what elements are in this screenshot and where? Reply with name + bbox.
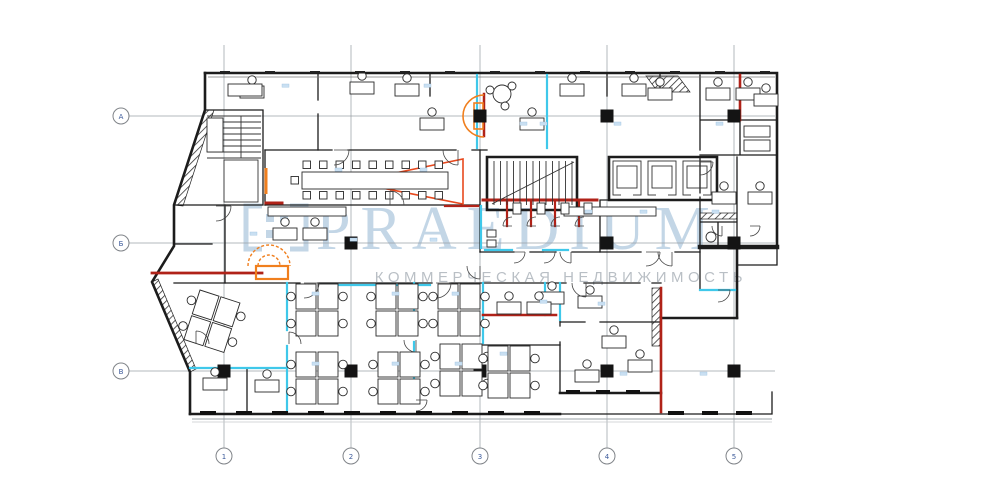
elevator-cab — [652, 166, 672, 188]
desk-with-chair — [748, 182, 772, 204]
desk — [712, 192, 736, 204]
desk — [510, 346, 530, 371]
desk-with-chair — [575, 360, 599, 382]
door-swing — [718, 290, 730, 302]
hatched-wall — [700, 213, 737, 219]
conference-chair — [402, 161, 410, 169]
mullion-mark — [400, 71, 410, 74]
mullion-mark — [445, 71, 455, 74]
grid-column-label: 5 — [732, 453, 736, 461]
desk-with-chair — [706, 78, 730, 100]
chair — [762, 84, 770, 92]
dimension-tag — [452, 292, 459, 295]
door-swing — [750, 226, 760, 236]
dimension-tag — [350, 238, 357, 241]
chair — [211, 368, 219, 376]
chair — [548, 282, 556, 290]
chair — [429, 319, 438, 328]
desk — [754, 94, 778, 106]
conference-chair — [291, 177, 299, 185]
chair — [287, 387, 296, 396]
dimension-tag — [700, 372, 707, 375]
chair — [583, 360, 591, 368]
desk — [318, 379, 338, 404]
stair-landing — [224, 160, 258, 202]
conference-chair — [303, 161, 311, 169]
chair — [339, 387, 348, 396]
chair — [281, 218, 289, 226]
desk — [527, 302, 551, 314]
elevator-cab — [687, 166, 707, 188]
sink — [487, 230, 496, 237]
desk — [378, 379, 398, 404]
dimension-tag — [312, 292, 319, 295]
conference-chair — [435, 192, 443, 200]
chair — [568, 74, 576, 82]
window-mark — [596, 390, 610, 394]
desk — [560, 84, 584, 96]
desk — [602, 336, 626, 348]
chair — [610, 326, 618, 334]
column — [474, 110, 487, 123]
desk — [622, 84, 646, 96]
dimension-tag — [392, 292, 399, 295]
desk — [488, 373, 508, 398]
desk-with-chair — [497, 292, 521, 314]
chair — [421, 360, 430, 369]
desk — [575, 370, 599, 382]
dimension-tag — [282, 84, 289, 87]
desk-cluster — [367, 284, 428, 336]
desk-cluster — [479, 346, 540, 398]
conference-chair — [320, 161, 328, 169]
conference-chair — [435, 161, 443, 169]
desk — [706, 88, 730, 100]
chair — [744, 78, 752, 86]
window-mark — [566, 390, 580, 394]
chair — [369, 387, 378, 396]
dimension-tag — [640, 210, 647, 213]
conference-chair — [353, 192, 361, 200]
desk — [438, 311, 458, 336]
chair — [311, 218, 319, 226]
desk — [420, 118, 444, 130]
chair — [508, 82, 516, 90]
chair — [486, 86, 494, 94]
chair — [479, 354, 488, 363]
desk — [296, 284, 316, 309]
mullion-mark — [355, 71, 365, 74]
dimension-tag — [540, 300, 547, 303]
window-mark — [200, 411, 216, 415]
conference-chair — [369, 192, 377, 200]
chair — [263, 370, 271, 378]
desk — [398, 284, 418, 309]
chair — [421, 387, 430, 396]
desk — [628, 360, 652, 372]
wc-fixture — [513, 203, 521, 214]
desk — [318, 352, 338, 377]
desk — [376, 311, 396, 336]
mullion-mark — [580, 71, 590, 74]
dimension-tag — [712, 210, 719, 213]
chair — [714, 78, 722, 86]
desk — [376, 284, 396, 309]
chair — [720, 182, 728, 190]
desk — [400, 352, 420, 377]
chair — [656, 78, 664, 86]
mullion-mark — [220, 71, 230, 74]
sink — [487, 240, 496, 247]
dimension-tag — [455, 362, 462, 365]
chair — [505, 292, 513, 300]
column — [728, 365, 741, 378]
window-mark — [668, 411, 684, 415]
desk — [395, 84, 419, 96]
cabinet — [207, 118, 223, 152]
column — [728, 110, 741, 123]
dimension-tag — [430, 238, 437, 241]
chair — [586, 286, 594, 294]
desk — [273, 228, 297, 240]
mullion-mark — [265, 71, 275, 74]
desk — [318, 284, 338, 309]
mullion-mark — [490, 71, 500, 74]
desk — [460, 311, 480, 336]
chair — [287, 360, 296, 369]
column — [601, 237, 614, 250]
grid-column-label: 3 — [478, 453, 482, 461]
mullion-mark — [760, 71, 770, 74]
dimension-tag — [392, 362, 399, 365]
dimension-tag — [420, 168, 427, 171]
dimension-tag — [335, 168, 342, 171]
desk-cluster — [287, 284, 348, 336]
window-mark — [452, 411, 468, 415]
desk — [303, 228, 327, 240]
chair — [367, 319, 376, 328]
chair — [339, 292, 348, 301]
conference-chair — [369, 161, 377, 169]
chair — [535, 292, 543, 300]
dimension-tag — [585, 210, 592, 213]
chair — [481, 319, 490, 328]
cabinet — [228, 84, 262, 96]
window-mark — [380, 411, 396, 415]
desk-cluster — [287, 352, 348, 404]
desk — [203, 378, 227, 390]
cabinet — [744, 140, 770, 151]
desk — [648, 88, 672, 100]
mullion-mark — [715, 71, 725, 74]
chair — [369, 360, 378, 369]
chair — [531, 354, 540, 363]
grid-column-label: 4 — [605, 453, 610, 461]
window-mark — [416, 411, 432, 415]
window-mark — [236, 411, 252, 415]
elevators — [613, 161, 711, 195]
dimension-tag — [250, 232, 257, 235]
desk — [296, 379, 316, 404]
chair — [339, 360, 348, 369]
grid-row-label: Б — [119, 240, 124, 248]
chair — [636, 350, 644, 358]
chair — [429, 292, 438, 301]
desk-with-chair — [712, 182, 736, 204]
column — [601, 365, 614, 378]
elevator-cab — [617, 166, 637, 188]
conference-table — [302, 172, 448, 189]
cabinet — [744, 126, 770, 137]
mullion-mark — [535, 71, 545, 74]
dimension-tag — [540, 122, 547, 125]
window-mark — [488, 411, 504, 415]
chair — [479, 381, 488, 390]
chair — [248, 76, 256, 84]
chair — [419, 292, 428, 301]
conference-chair — [419, 161, 427, 169]
chair — [339, 319, 348, 328]
chair — [403, 74, 411, 82]
chair — [287, 319, 296, 328]
desk — [296, 311, 316, 336]
dimension-tag — [598, 302, 605, 305]
cabinet — [268, 207, 346, 216]
chair — [419, 319, 428, 328]
mullion-mark — [310, 71, 320, 74]
grid-column-label: 2 — [349, 453, 353, 461]
desk — [748, 192, 772, 204]
conference-chair — [336, 192, 344, 200]
wc-fixture — [537, 203, 545, 214]
desk-with-chair — [520, 108, 544, 130]
partition — [174, 205, 225, 283]
window-mark — [736, 411, 752, 415]
dimension-tag — [520, 122, 527, 125]
desk — [438, 284, 458, 309]
dimension-tag — [716, 122, 723, 125]
window-mark — [344, 411, 360, 415]
chair — [756, 182, 764, 190]
dimension-tag — [500, 352, 507, 355]
desk — [398, 311, 418, 336]
window-mark — [524, 411, 540, 415]
chair — [531, 381, 540, 390]
desk-cluster — [369, 352, 430, 404]
conference-chair — [419, 192, 427, 200]
chair — [528, 108, 536, 116]
desk-with-chair — [420, 108, 444, 130]
conference-chair — [320, 192, 328, 200]
desk — [255, 380, 279, 392]
chair — [431, 352, 440, 361]
conference-chair — [386, 192, 394, 200]
dimension-tag — [614, 122, 621, 125]
hatched-wall — [652, 288, 660, 346]
floorplan-page: PRAEDIUM КОММЕРЧЕСКАЯ НЕДВИЖИМОСТЬ 12345… — [0, 0, 990, 492]
desk-with-chair — [754, 84, 778, 106]
conference-chair — [303, 192, 311, 200]
desk-with-chair — [255, 370, 279, 392]
wc-fixture — [561, 203, 569, 214]
window-mark — [702, 411, 718, 415]
mullion-mark — [670, 71, 680, 74]
desk-with-chair — [602, 326, 626, 348]
grid-row-label: В — [119, 368, 124, 376]
balcony-edge — [737, 247, 777, 265]
dimension-tag — [424, 84, 431, 87]
desk — [488, 346, 508, 371]
chair — [630, 74, 638, 82]
window-mark — [272, 411, 288, 415]
desk-with-chair — [628, 350, 652, 372]
conference-chair — [402, 192, 410, 200]
terrace-parapet — [560, 392, 772, 414]
chair — [428, 108, 436, 116]
grid-row-label: А — [119, 113, 124, 121]
column — [601, 110, 614, 123]
column — [728, 237, 741, 250]
dimension-tag — [620, 372, 627, 375]
chair — [367, 292, 376, 301]
chair — [481, 292, 490, 301]
mullion-mark — [625, 71, 635, 74]
window-mark — [626, 390, 640, 394]
conference-chair — [353, 161, 361, 169]
chair — [287, 292, 296, 301]
conference-room — [302, 172, 448, 189]
desk — [497, 302, 521, 314]
desk — [460, 284, 480, 309]
floorplan-canvas: PRAEDIUM КОММЕРЧЕСКАЯ НЕДВИЖИМОСТЬ 12345… — [0, 0, 990, 492]
desk — [318, 311, 338, 336]
conference-chair — [386, 161, 394, 169]
desk-with-chair — [273, 218, 297, 240]
desk — [440, 371, 460, 396]
chair — [501, 102, 509, 110]
desk — [350, 82, 374, 94]
chair — [431, 379, 440, 388]
dimension-tag — [312, 362, 319, 365]
window-mark — [308, 411, 324, 415]
desk-with-chair — [350, 72, 374, 94]
desk — [510, 373, 530, 398]
grid-column-label: 1 — [222, 453, 226, 461]
door-swing — [216, 206, 231, 221]
